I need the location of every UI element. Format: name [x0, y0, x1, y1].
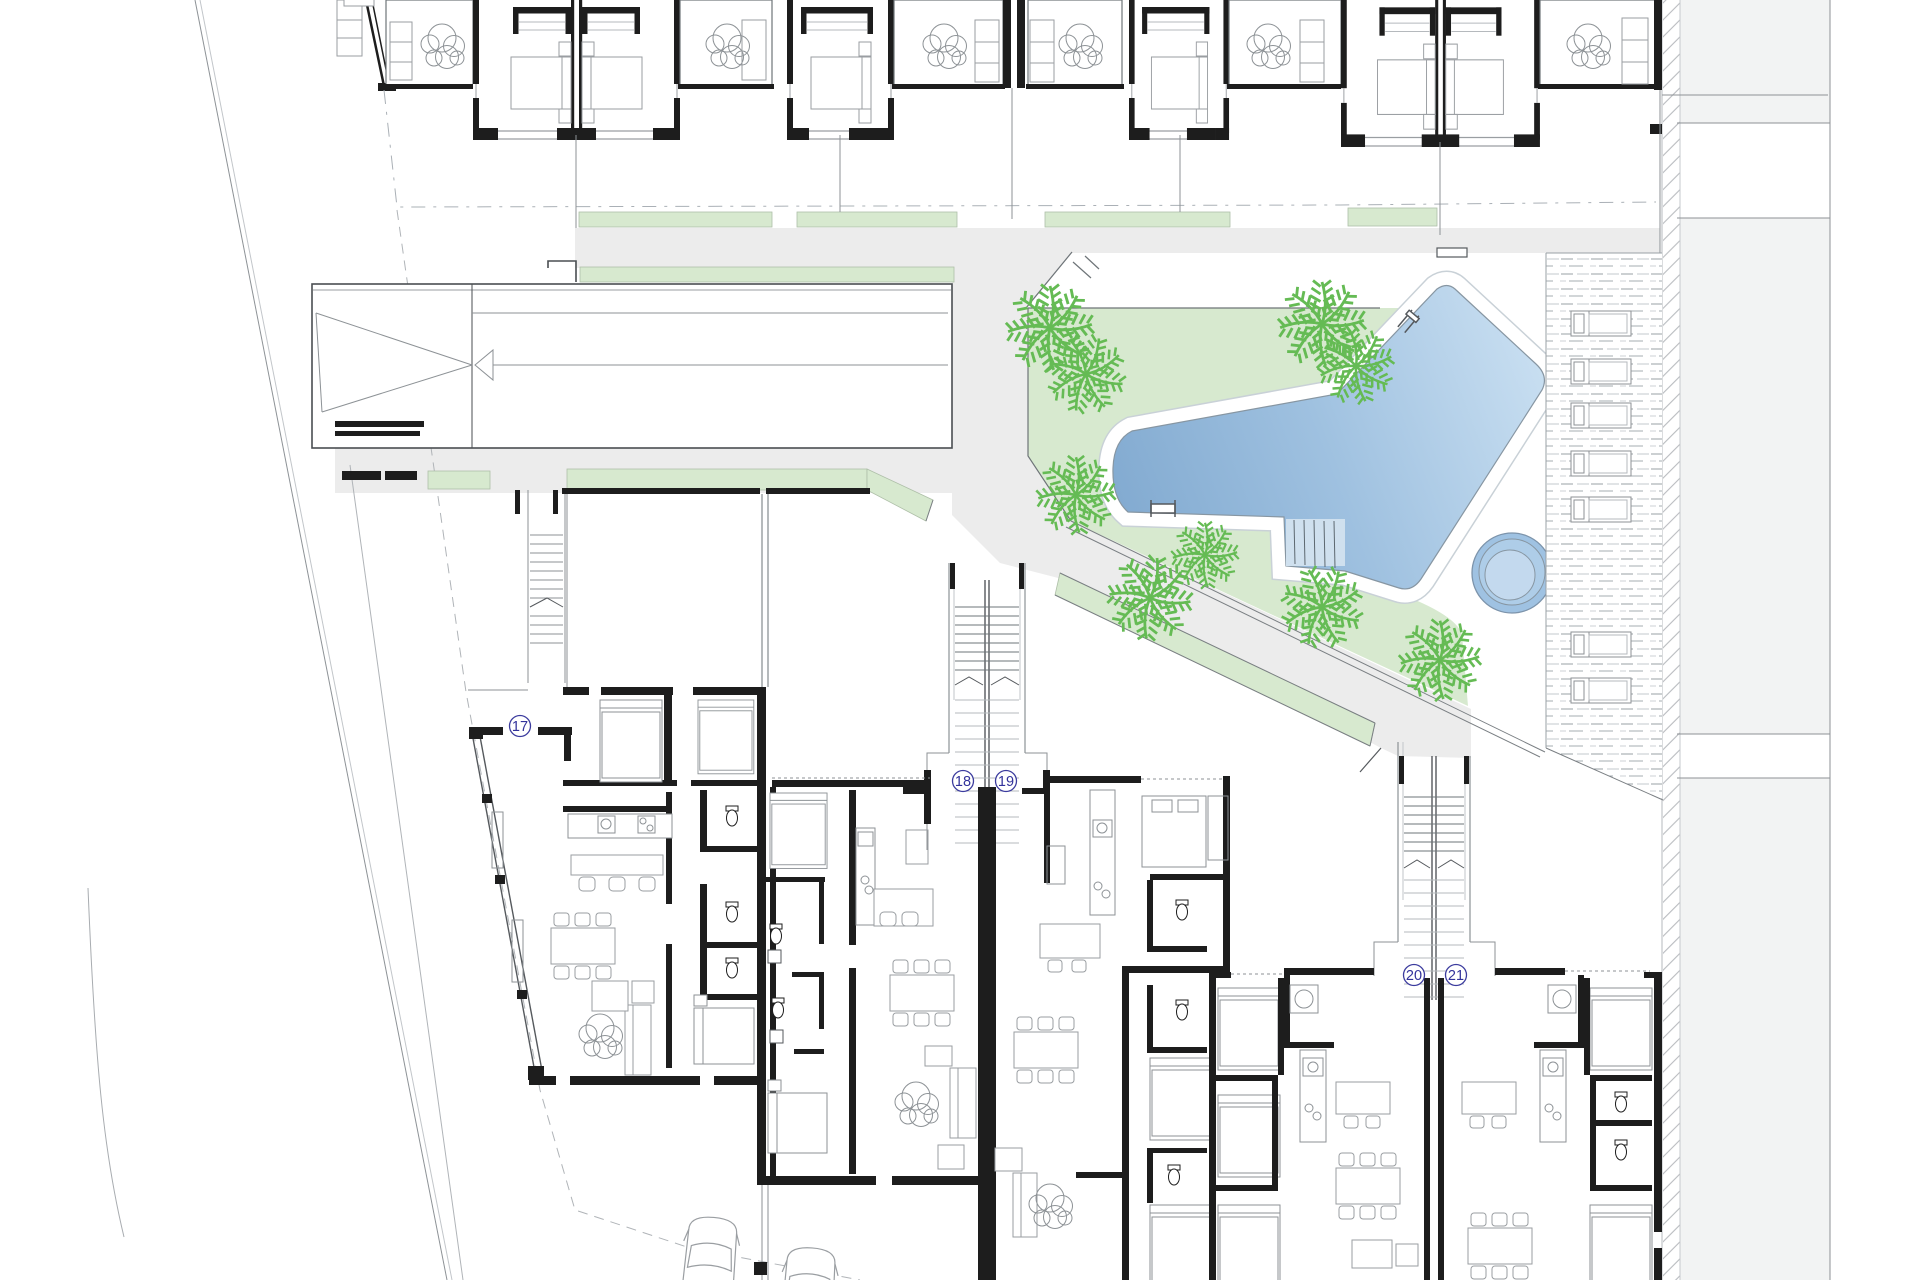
svg-text:21: 21 — [1448, 968, 1464, 984]
svg-text:20: 20 — [1406, 968, 1422, 984]
svg-text:18: 18 — [955, 774, 971, 790]
svg-text:17: 17 — [512, 719, 528, 735]
svg-text:19: 19 — [998, 774, 1014, 790]
